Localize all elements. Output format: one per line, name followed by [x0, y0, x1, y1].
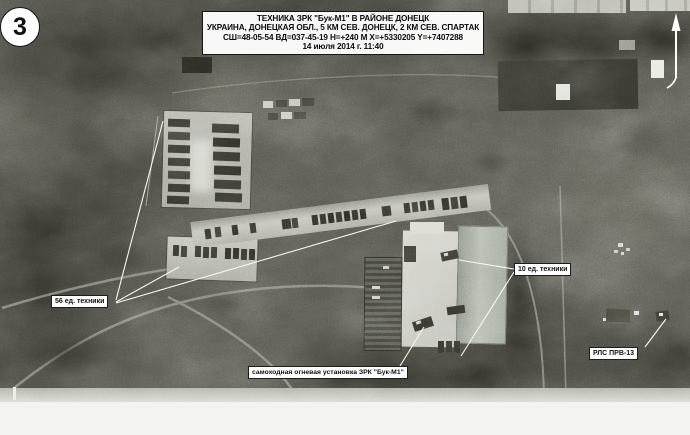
callout-label-56-vehicles: 56 ед. техники: [51, 295, 108, 308]
photo-bottom-washout: [0, 388, 690, 401]
vehicle-mark: [351, 210, 358, 221]
vehicle-mark: [203, 247, 209, 258]
vehicle-mark: [168, 132, 190, 141]
vehicle-mark: [327, 213, 334, 224]
caption-line-datetime: 14 июля 2014 г. 11:40: [204, 42, 482, 51]
tree-cluster: [95, 235, 150, 275]
apron-extension: [410, 222, 444, 234]
slide-number-badge: 3: [0, 7, 40, 47]
vehicle-mark: [231, 225, 238, 236]
vehicle-mark: [311, 215, 318, 226]
vehicle-mark: [204, 229, 211, 240]
hangar-building: [365, 258, 402, 350]
north-building-roof: [508, 0, 626, 13]
callout-label-buk-launcher: самоходная огневая установка ЗРК "Бук-М1…: [248, 366, 408, 379]
vehicle-mark: [359, 209, 366, 220]
vehicle-mark: [249, 223, 256, 234]
vehicle-mark: [214, 227, 221, 238]
vehicle-park-light-patch: [190, 140, 212, 192]
vehicle-mark: [383, 266, 389, 269]
vehicle-mark: [603, 318, 606, 321]
vehicle-mark: [182, 57, 212, 73]
vehicle-mark: [411, 202, 418, 213]
vehicle-mark: [195, 246, 201, 257]
vehicle-mark: [626, 248, 630, 251]
vehicle-mark: [281, 112, 292, 119]
tree-cluster: [0, 190, 70, 250]
vehicle-mark: [276, 100, 287, 107]
vehicle-mark: [168, 184, 190, 193]
vehicle-mark: [459, 196, 467, 209]
vehicle-mark: [302, 98, 314, 106]
vehicle-mark: [181, 246, 187, 257]
vehicle-mark: [213, 152, 240, 162]
vehicle-mark: [212, 124, 239, 134]
vehicle-mark: [213, 138, 240, 148]
vehicle-mark: [610, 324, 626, 332]
vehicle-mark: [651, 60, 664, 78]
vehicle-mark: [427, 200, 434, 211]
vehicle-mark: [291, 218, 298, 229]
vehicle-mark: [233, 248, 239, 259]
vehicle-mark: [214, 166, 241, 176]
vehicle-mark: [249, 249, 255, 260]
vehicle-mark: [450, 197, 458, 210]
callout-label-10-vehicles: 10 ед. техники: [514, 263, 571, 276]
vehicle-mark: [263, 101, 273, 108]
vehicle-mark: [215, 193, 242, 203]
vehicle-mark: [619, 40, 635, 50]
vehicle-mark: [289, 99, 300, 106]
vehicle-mark: [168, 171, 190, 180]
tree-cluster: [640, 25, 690, 55]
vehicle-mark: [372, 296, 380, 299]
vehicle-mark: [281, 218, 291, 229]
slide-bottom-margin: [0, 401, 690, 435]
vehicle-mark: [419, 201, 426, 212]
tree-cluster: [470, 150, 510, 176]
vehicle-mark: [403, 203, 410, 214]
vehicle-mark: [168, 119, 190, 128]
tree-cluster: [25, 330, 115, 380]
vehicle-mark: [319, 214, 326, 225]
vehicle-mark: [442, 352, 456, 356]
vehicle-mark: [211, 247, 217, 258]
tree-cluster: [200, 290, 250, 316]
vehicle-mark: [655, 310, 669, 322]
vehicle-mark: [168, 158, 190, 167]
tree-cluster: [130, 20, 190, 55]
slide-number: 3: [13, 13, 27, 42]
vehicle-mark: [167, 196, 189, 205]
vehicle-mark: [618, 243, 623, 247]
tree-cluster: [405, 95, 460, 130]
north-building-roof-2: [630, 0, 690, 11]
vehicle-mark: [343, 211, 350, 222]
vehicle-mark: [372, 286, 380, 289]
image-caption-box: ТЕХНИКА ЗРК "Бук-М1" В РАЙОНЕ ДОНЕЦК УКР…: [202, 11, 484, 55]
vehicle-mark: [294, 112, 306, 119]
caption-line-title: ТЕХНИКА ЗРК "Бук-М1" В РАЙОНЕ ДОНЕЦК: [204, 14, 482, 23]
tree-cluster: [610, 120, 670, 160]
satellite-photo: 56 ед. техники 10 ед. техники самоходная…: [0, 0, 690, 401]
vehicle-mark: [606, 308, 631, 322]
vehicle-mark: [614, 250, 618, 253]
callout-label-radar: РЛС ПРВ-13: [589, 347, 638, 360]
warehouse-building: [456, 225, 508, 344]
photo-edge-artifact: [13, 387, 16, 400]
vehicle-mark: [173, 245, 179, 256]
vehicle-mark: [241, 249, 247, 260]
tree-cluster: [60, 55, 130, 100]
vehicle-mark: [381, 205, 391, 216]
vehicle-mark: [225, 248, 231, 259]
vehicle-mark: [659, 313, 663, 316]
vehicle-mark: [556, 84, 570, 100]
caption-line-location: УКРАИНА, ДОНЕЦКАЯ ОБЛ., 5 КМ СЕВ. ДОНЕЦК…: [204, 23, 482, 32]
vehicle-mark: [621, 252, 624, 255]
vehicle-mark: [404, 246, 416, 262]
caption-line-coordinates: СШ=48-05-54 ВД=037-45-19 Н=+240 М Х=+533…: [204, 33, 482, 42]
satellite-annotation-slide: 56 ед. техники 10 ед. техники самоходная…: [0, 0, 690, 435]
vehicle-mark: [168, 145, 190, 154]
vehicle-mark: [268, 113, 278, 120]
vehicle-mark: [214, 180, 241, 190]
vehicle-mark: [335, 212, 342, 223]
vehicle-mark: [441, 198, 449, 211]
vehicle-mark: [634, 311, 639, 315]
